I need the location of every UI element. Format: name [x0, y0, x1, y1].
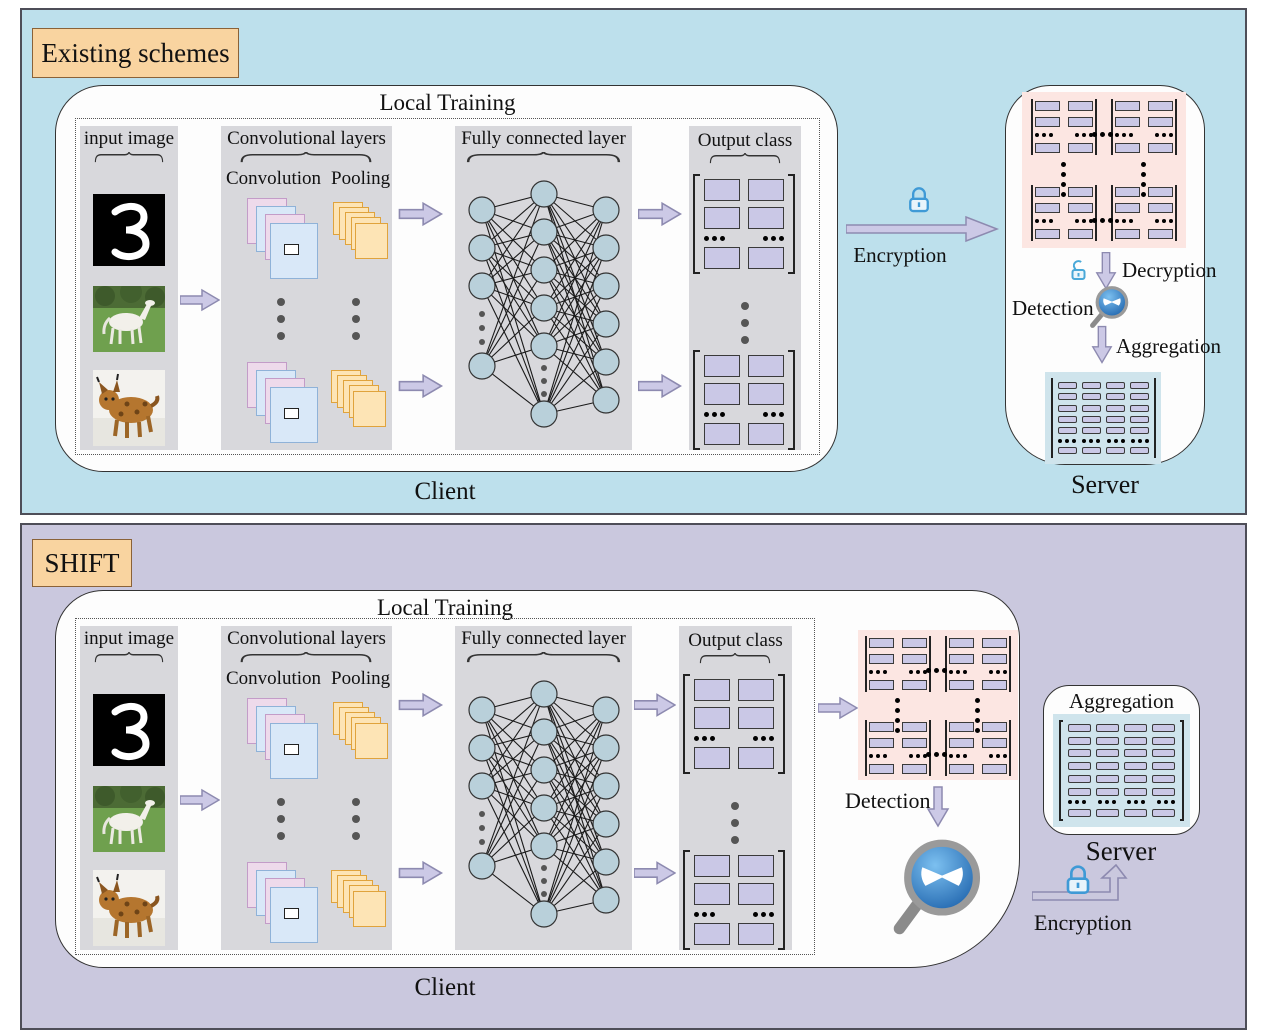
aggregation-label: Aggregation [1116, 334, 1221, 359]
magnifier-devil-icon [888, 836, 992, 940]
conv-stack [247, 198, 319, 280]
mnist-digit-3-image [93, 694, 165, 766]
panel-title-shift-label: SHIFT [44, 548, 119, 579]
lock-icon [1062, 864, 1094, 896]
encrypted-weight-group [1031, 185, 1097, 241]
block-arrow-right-icon [398, 859, 444, 887]
lynx-image [93, 870, 165, 946]
block-arrow-right-icon [398, 691, 444, 719]
curly-brace [239, 652, 373, 663]
horse-image [93, 786, 165, 852]
decryption-label: Decryption [1122, 258, 1216, 283]
input-image-label: input image [80, 128, 178, 150]
output-class-column: Output class [679, 626, 792, 950]
curly-brace [94, 652, 164, 663]
encryption-arrow-icon [846, 213, 1000, 245]
output-class-label: Output class [689, 130, 801, 152]
input-image-label: input image [80, 628, 178, 650]
weight-matrix [683, 850, 787, 950]
neural-network [464, 680, 624, 928]
block-arrow-right-icon [398, 200, 444, 228]
conv-layers-label: Convolutional layers [221, 628, 392, 650]
panel-title-existing: Existing schemes [32, 28, 239, 78]
neural-network [464, 180, 624, 428]
weight-updates-box [858, 630, 1018, 780]
v-ellipsis [277, 798, 285, 840]
aggregation-label: Aggregation [1043, 689, 1200, 714]
conv-stack [247, 698, 319, 780]
v-ellipsis [277, 298, 285, 340]
fc-layer-label: Fully connected layer [455, 628, 632, 650]
open-lock-icon [1066, 258, 1090, 282]
client-label: Client [380, 974, 510, 1002]
weight-matrix [683, 674, 787, 774]
conv-layers-label: Convolutional layers [221, 128, 392, 150]
conv-stack [247, 862, 319, 944]
v-ellipsis [352, 298, 360, 340]
block-arrow-right-icon [634, 691, 676, 719]
encrypted-weight-group [1111, 185, 1177, 241]
curly-brace [465, 652, 622, 663]
panel-title-shift: SHIFT [32, 539, 132, 587]
curly-brace [465, 152, 622, 163]
conv-layers-column: Convolutional layers Convolution Pooling [221, 626, 392, 950]
pooling-label: Pooling [331, 168, 390, 190]
block-arrow-right-icon [634, 859, 676, 887]
pooling-label: Pooling [331, 668, 390, 690]
curly-brace [699, 653, 771, 664]
block-arrow-right-icon [638, 200, 682, 228]
pooling-stack [333, 202, 389, 262]
h-ellipsis [926, 668, 947, 673]
h-ellipsis [1092, 132, 1113, 137]
aggregated-weight-matrix [1051, 378, 1155, 458]
curly-brace [239, 152, 373, 163]
horse-image [93, 286, 165, 352]
curly-brace [94, 152, 164, 163]
block-arrow-right-icon [398, 372, 444, 400]
aggregated-weight-matrix [1059, 720, 1184, 821]
server-label: Server [1045, 470, 1165, 500]
encrypted-weight-group [865, 636, 931, 692]
encrypted-weight-group [945, 636, 1011, 692]
input-image-column: input image [80, 626, 178, 950]
block-arrow-down-icon [1090, 324, 1114, 366]
server-label: Server [1061, 836, 1181, 867]
encrypted-weight-group [1031, 99, 1097, 155]
convolution-label: Convolution [226, 668, 321, 690]
fc-layer-column: Fully connected layer [455, 626, 632, 950]
conv-layers-column: Convolutional layers Convolution Pooling [221, 126, 392, 450]
h-ellipsis [926, 752, 947, 757]
output-class-column: Output class [689, 126, 801, 450]
detection-label: Detection [845, 788, 931, 814]
block-arrow-right-icon [638, 372, 682, 400]
block-arrow-down-icon [925, 784, 951, 830]
v-ellipsis [352, 798, 360, 840]
lock-icon [905, 186, 933, 214]
block-arrow-right-icon [818, 694, 858, 722]
curly-brace [709, 153, 781, 164]
h-ellipsis [1092, 218, 1113, 223]
conv-stack [247, 362, 319, 444]
fc-layer-label: Fully connected layer [455, 128, 632, 150]
encryption-label: Encryption [845, 243, 955, 268]
block-arrow-right-icon [180, 286, 220, 314]
aggregated-model-box [1053, 714, 1190, 827]
lynx-image [93, 370, 165, 446]
detection-label: Detection [1012, 296, 1092, 321]
encryption-label: Encryption [1034, 910, 1132, 936]
encrypted-weight-group [945, 720, 1011, 776]
block-arrow-right-icon [180, 786, 220, 814]
local-training-label: Local Training [75, 90, 820, 116]
mnist-digit-3-image [93, 194, 165, 266]
encrypted-updates-box [1022, 92, 1186, 248]
aggregated-model-box [1045, 372, 1161, 464]
pooling-stack [331, 370, 387, 430]
v-ellipsis [741, 302, 749, 344]
client-label: Client [380, 478, 510, 506]
weight-matrix [693, 350, 797, 450]
pooling-stack [331, 870, 387, 930]
encrypted-weight-group [1111, 99, 1177, 155]
figure: Existing schemes Local Training input im… [0, 0, 1267, 1035]
panel-title-existing-label: Existing schemes [41, 38, 229, 69]
v-ellipsis [731, 802, 739, 844]
convolution-label: Convolution [226, 168, 321, 190]
input-image-column: input image [80, 126, 178, 450]
pooling-stack [333, 702, 389, 762]
fc-layer-column: Fully connected layer [455, 126, 632, 450]
weight-matrix [693, 174, 797, 274]
output-class-label: Output class [679, 630, 792, 652]
encrypted-weight-group [865, 720, 931, 776]
